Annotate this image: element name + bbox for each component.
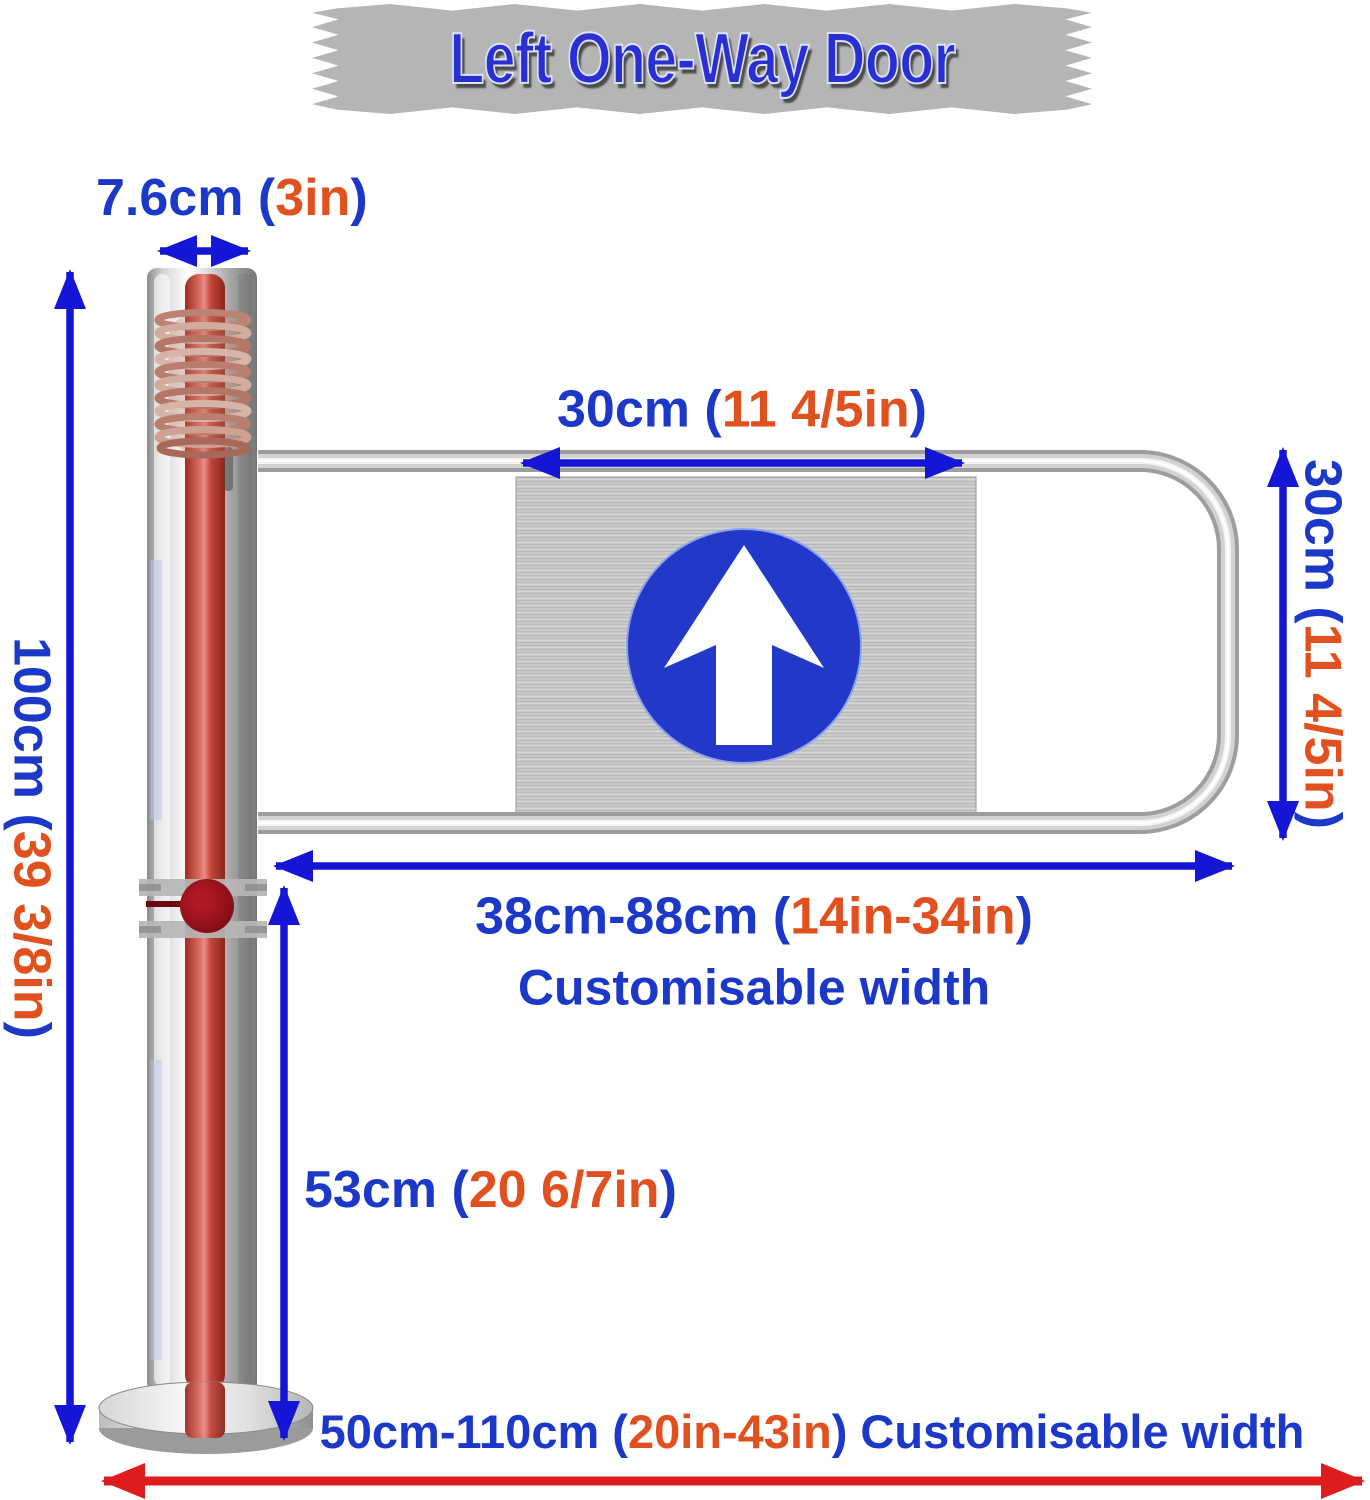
title-banner: Left One-Way Door [312,4,1092,114]
total-width-label: 50cm-110cm (20in-43in) Customisable widt… [320,1406,1305,1458]
gate-width-note: Customisable width [518,961,990,1016]
panel-width-label: 30cm (11 4/5in) [557,381,927,438]
page-title: Left One-Way Door [449,18,955,100]
gate-width-label: 38cm-88cm (14in-34in) [475,888,1033,945]
pole-height-label: 100cm (39 3/8in) [2,637,59,1039]
pole-width-label: 7.6cm (3in) [96,170,368,227]
clearance-label: 53cm (20 6/7in) [304,1162,677,1219]
gate-height-label: 30cm (11 4/5in) [1293,459,1350,829]
product-diagram: Left One-Way Door 7.6cm (3in) 30cm (11 4… [0,0,1370,1500]
